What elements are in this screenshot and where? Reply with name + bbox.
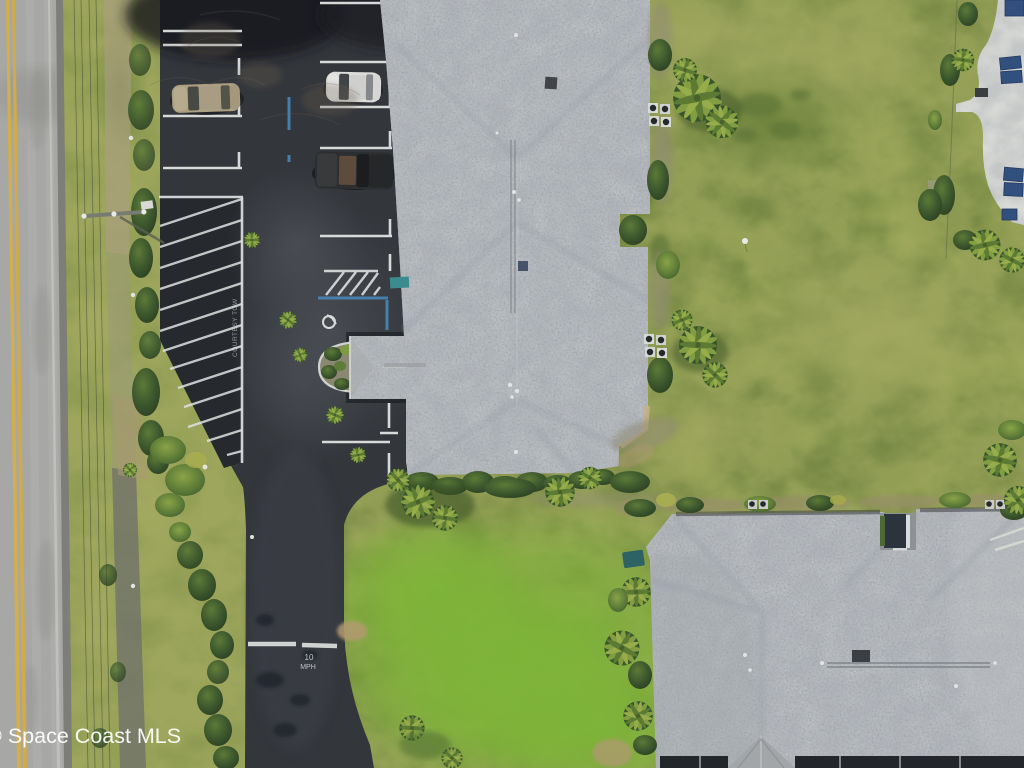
svg-text:COURTESY TOW: COURTESY TOW xyxy=(232,298,239,357)
svg-text:© Space Coast MLS: © Space Coast MLS xyxy=(0,724,181,748)
svg-text:10: 10 xyxy=(305,653,314,662)
svg-text:MPH: MPH xyxy=(300,664,316,671)
